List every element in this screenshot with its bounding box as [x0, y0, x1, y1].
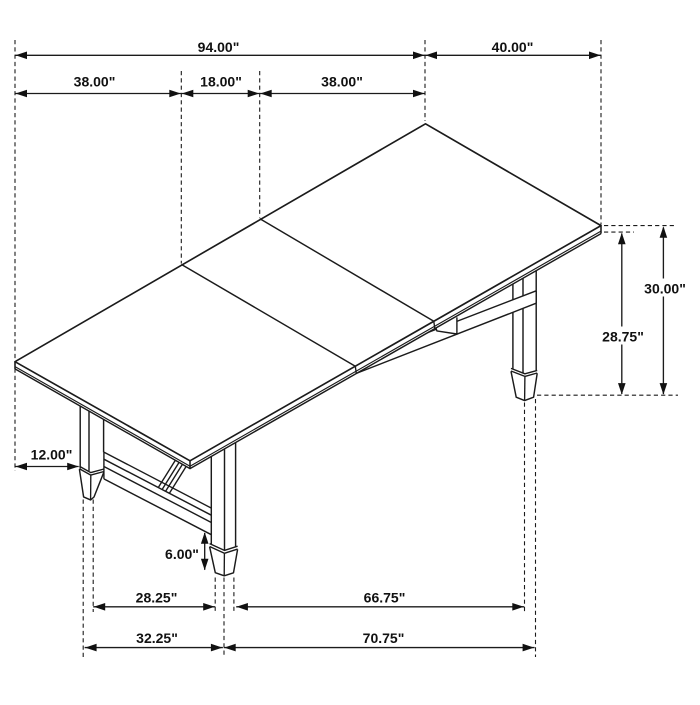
svg-text:38.00": 38.00": [74, 74, 116, 90]
svg-text:30.00": 30.00": [644, 281, 686, 297]
svg-text:40.00": 40.00": [492, 39, 534, 55]
svg-text:18.00": 18.00": [200, 74, 242, 90]
svg-text:38.00": 38.00": [321, 74, 363, 90]
svg-text:12.00": 12.00": [31, 447, 73, 463]
svg-text:28.25": 28.25": [136, 590, 178, 606]
svg-text:66.75": 66.75": [364, 590, 406, 606]
svg-text:32.25": 32.25": [136, 630, 178, 646]
svg-text:6.00": 6.00": [165, 546, 199, 562]
svg-text:70.75": 70.75": [363, 630, 405, 646]
svg-text:28.75": 28.75": [602, 329, 644, 345]
svg-text:94.00": 94.00": [198, 39, 240, 55]
